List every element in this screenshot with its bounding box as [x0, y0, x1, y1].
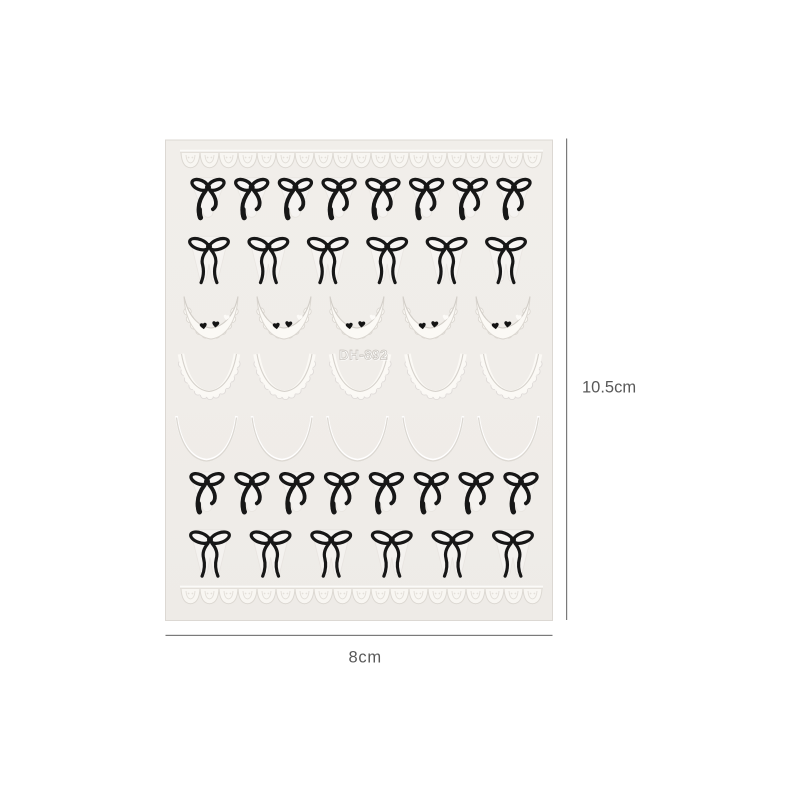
svg-text:10.5cm: 10.5cm — [582, 379, 636, 397]
svg-text:DH-892: DH-892 — [339, 348, 388, 363]
svg-text:8cm: 8cm — [349, 649, 382, 667]
